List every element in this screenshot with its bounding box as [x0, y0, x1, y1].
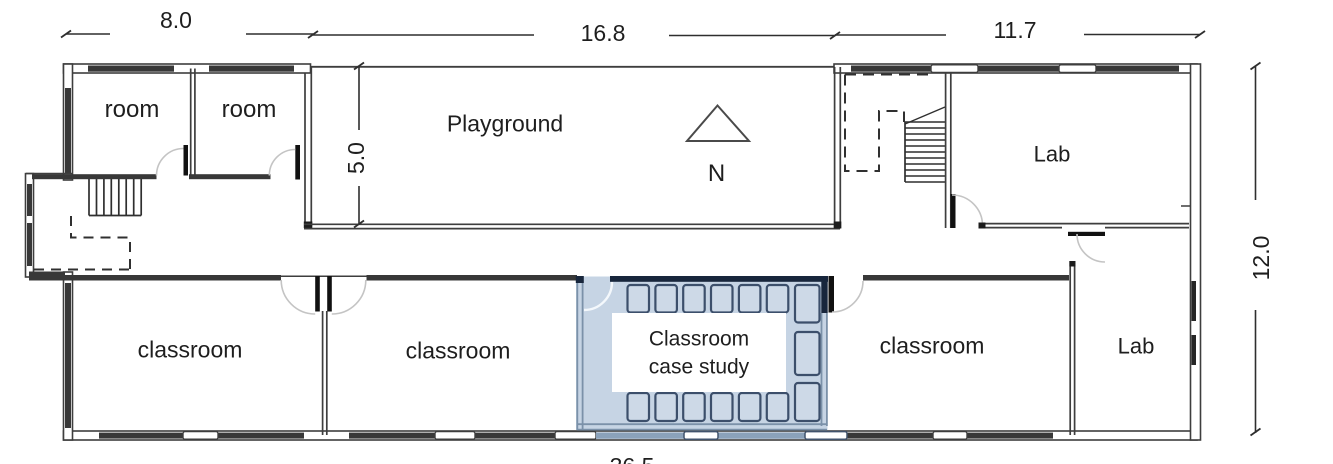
svg-text:5.0: 5.0: [343, 142, 369, 174]
svg-text:Lab: Lab: [1034, 142, 1071, 167]
svg-text:Classroom: Classroom: [649, 328, 749, 351]
svg-text:classroom: classroom: [406, 338, 511, 364]
svg-text:room: room: [222, 96, 277, 123]
svg-text:16.8: 16.8: [581, 20, 626, 46]
svg-text:11.7: 11.7: [993, 17, 1036, 43]
svg-text:room: room: [105, 96, 160, 123]
svg-text:12.0: 12.0: [1248, 236, 1274, 281]
svg-text:classroom: classroom: [138, 337, 243, 363]
svg-text:8.0: 8.0: [160, 7, 192, 33]
svg-text:36.5: 36.5: [610, 453, 655, 464]
svg-text:case study: case study: [649, 356, 750, 379]
svg-text:classroom: classroom: [880, 333, 985, 359]
svg-text:Lab: Lab: [1118, 334, 1155, 359]
svg-text:Playground: Playground: [447, 111, 563, 137]
svg-text:N: N: [708, 160, 725, 187]
